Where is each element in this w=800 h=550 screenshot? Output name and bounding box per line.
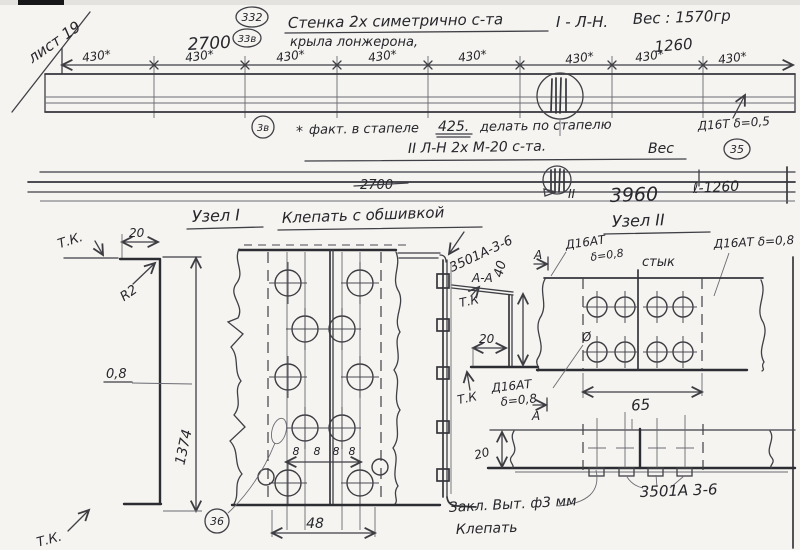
second-view-weight: Вес [648, 141, 674, 157]
part-number-strip: 3501А 3-6 [640, 480, 718, 501]
pitch-dim: 8 [314, 445, 321, 458]
node1-header: Узел I Клепать с обшивкой [187, 203, 482, 230]
dim-48: 48 [306, 516, 324, 532]
tk-mark-top: Т.К. [56, 230, 85, 252]
break-line-left [510, 431, 514, 468]
material-label: Д16Т δ=0,5 [696, 114, 770, 133]
angle-profile-detail: Т.К. 20 R2 0,8 1374 Т.К. [35, 226, 202, 550]
edge-angle-member [399, 232, 476, 507]
radius-label: R2 [118, 283, 141, 305]
pitch-dim: 8 [333, 445, 340, 458]
break-line-left [537, 279, 545, 371]
scan-artifacts [0, 0, 800, 548]
detail-mark-ii: II [568, 187, 576, 201]
second-view-strip: II Л-Н 2х М-20 с-та. Вес 2700 II 3960 ℓ-… [28, 139, 795, 207]
material-callout-top: Д16Т δ=0,5 35 [696, 95, 770, 159]
dim-40: 40 [491, 259, 510, 279]
dim-20-flange: 20 [129, 226, 145, 240]
bay-dim: 430* [564, 49, 595, 67]
node1-note: Клепать с обшивкой [282, 203, 445, 227]
width-dimension: 65 [583, 373, 702, 415]
weight-note: Вес : 1570гр [633, 7, 732, 28]
node2-header: Узел II [604, 210, 710, 234]
material-right: Д16АТ δ=0,8 [712, 233, 794, 251]
node1-title: Узел I [191, 205, 240, 226]
joint-label: стык [642, 255, 675, 270]
note-text-b: делать по стапелю [479, 118, 612, 135]
cut-mark-bottom: А [531, 409, 540, 423]
bay-dim: 430* [457, 47, 488, 65]
dim-l-1260: ℓ-1260 [691, 179, 739, 197]
rivet-holes-node2 [583, 291, 697, 368]
section-label: А-А [471, 271, 493, 285]
diameter-mark: Ø [580, 329, 593, 345]
bay-dim: 430* [367, 47, 398, 65]
balloon-36-label: 36 [210, 515, 224, 528]
break-line-left [228, 249, 245, 504]
tk-mark-lower: Т.К [456, 389, 479, 407]
note-text-a: факт. в стапеле [309, 121, 419, 138]
break-line-right [760, 280, 765, 371]
node2-title: Узел II [611, 210, 665, 231]
tk-mark-upper: Т.К [458, 292, 481, 310]
material-left-line2: δ=0,8 [590, 246, 625, 264]
tk-mark-bottom: Т.К. [35, 530, 63, 550]
thickness-label: 0,8 [106, 367, 127, 382]
bay-dim: 430* [634, 47, 665, 65]
material-line2: δ=0,8 [500, 391, 538, 409]
drawing-canvas: лист 19 332 33в Стенка 2х симетрично с-т… [0, 0, 800, 550]
rivet-note-line2: Клепать [456, 520, 518, 538]
pitch-dim: 8 [349, 445, 356, 458]
bay-dimensions: 430* 430* 430* 430* 430* 430* 430* 430* [81, 47, 748, 67]
dim-20-strip: 20 [473, 445, 492, 463]
section-aa: 3501А-3-6 А-А Т.К 40 20 Т.К Д16АТ δ=0,8 … [447, 233, 548, 423]
balloon-35-label: 35 [730, 143, 744, 156]
node1-plate-detail: 36 8 8 8 8 48 [205, 232, 476, 537]
bay-dim: 430* [717, 49, 748, 67]
splice-detail-circle-2: II [543, 166, 576, 201]
dim-1374: 1374 [173, 428, 196, 466]
cut-mark-top: А [533, 248, 542, 262]
note-value: 425. [438, 119, 469, 135]
drawing-subtitle: крыла лонжерона, [290, 35, 418, 50]
break-line-right [393, 252, 401, 504]
balloon-3v-label: 3в [257, 123, 269, 134]
drawing-title: Стенка 2х симетрично с-та [288, 10, 504, 32]
bay-dim: 430* [81, 47, 112, 65]
sheet-note: лист 19 [24, 17, 84, 67]
second-view-header: II Л-Н 2х М-20 с-та. [408, 139, 547, 157]
note-star: * [296, 124, 303, 140]
bay-dim: 430* [275, 47, 306, 65]
rivet-note-line1: Закл. Выт. ф3 мм [448, 493, 577, 516]
scanned-drawing-sheet: лист 19 332 33в Стенка 2х симетрично с-т… [0, 0, 800, 550]
node2-plate-detail: Д16АТ δ=0,8 стык Д16АТ δ=0,8 Ø 65 [537, 232, 795, 414]
dim-3960: 3960 [609, 183, 658, 207]
drawing-title-code: I - Л-Н. [556, 13, 608, 31]
dim-65: 65 [630, 395, 650, 414]
struck-dimension: 2700 [354, 178, 408, 193]
break-line-right [769, 431, 773, 468]
balloon-332-label: 332 [242, 11, 263, 24]
strip-side-view: 20 3501А 3-6 Закл. Выт. ф3 мм Клепать [448, 412, 795, 538]
rivet-holes [258, 262, 388, 504]
jig-note: 3в * факт. в стапеле 425. делать по стап… [252, 116, 612, 140]
pitch-dim: 8 [293, 445, 300, 458]
dim-20-section: 20 [479, 332, 495, 346]
balloon-36-callout: 36 [205, 417, 289, 533]
balloon-33v-label: 33в [238, 34, 257, 45]
bay-dim: 430* [184, 47, 215, 65]
